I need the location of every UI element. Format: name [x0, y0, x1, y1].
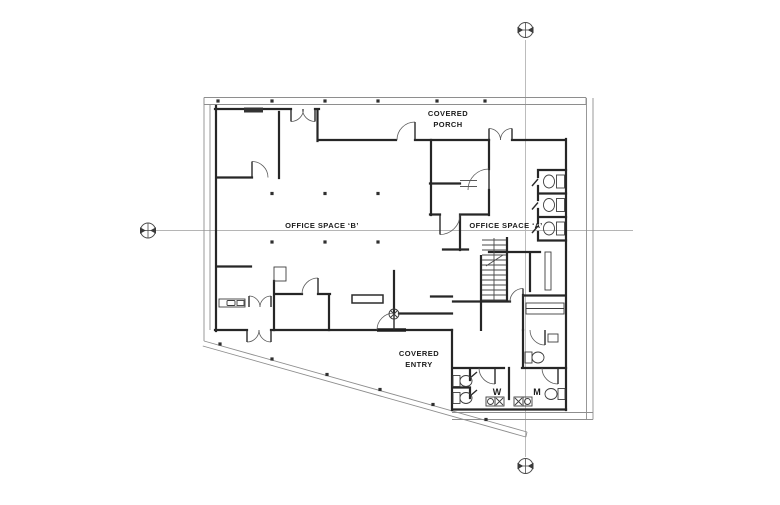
- datum-markers: [140, 23, 534, 474]
- closet: [274, 267, 286, 281]
- label-covered-entry-line1: COVERED: [399, 349, 439, 358]
- label-restroom-w: W: [493, 387, 502, 397]
- column-dots: [216, 99, 487, 421]
- label-covered-entry-line2: ENTRY: [405, 360, 432, 369]
- canopy-top-band: [204, 98, 586, 105]
- label-restroom-m: M: [533, 387, 541, 397]
- break-counter: [219, 299, 245, 307]
- label-office-space-a: OFFICE SPACE ‘A’: [469, 221, 542, 230]
- reception-desk: [352, 295, 383, 303]
- canopy-diagonal-band: [203, 341, 527, 437]
- datum-marker-bottom-icon: [518, 459, 534, 474]
- canopy-right-band: [587, 98, 594, 420]
- floor-plan-sheet: COVERED PORCH OFFICE SPACE ‘B’ OFFICE SP…: [0, 0, 780, 505]
- label-covered-porch-line1: COVERED: [428, 109, 468, 118]
- top-wall-casework: [244, 108, 263, 113]
- toilet-single: [525, 352, 544, 363]
- datum-marker-left-icon: [140, 223, 156, 238]
- walls-office-a: [430, 139, 566, 410]
- floor-plan-drawing: COVERED PORCH OFFICE SPACE ‘B’ OFFICE SP…: [0, 0, 780, 505]
- canopy-bottom-band: [452, 413, 593, 420]
- casework-a: [526, 303, 564, 314]
- fixtures: [219, 175, 565, 406]
- door-arcs: [247, 109, 558, 384]
- label-covered-porch-line2: PORCH: [433, 120, 462, 129]
- stair-break-line: [486, 255, 503, 266]
- toilet-m: [545, 389, 565, 400]
- canopy-left-band: [204, 98, 210, 342]
- toilet-1: [544, 175, 565, 188]
- casework-l-room: [545, 252, 551, 290]
- sink-single: [548, 334, 558, 342]
- toilet-3: [544, 222, 565, 235]
- label-office-space-b: OFFICE SPACE ‘B’: [285, 221, 359, 230]
- toilet-2: [544, 199, 565, 212]
- datum-marker-top-icon: [518, 23, 534, 38]
